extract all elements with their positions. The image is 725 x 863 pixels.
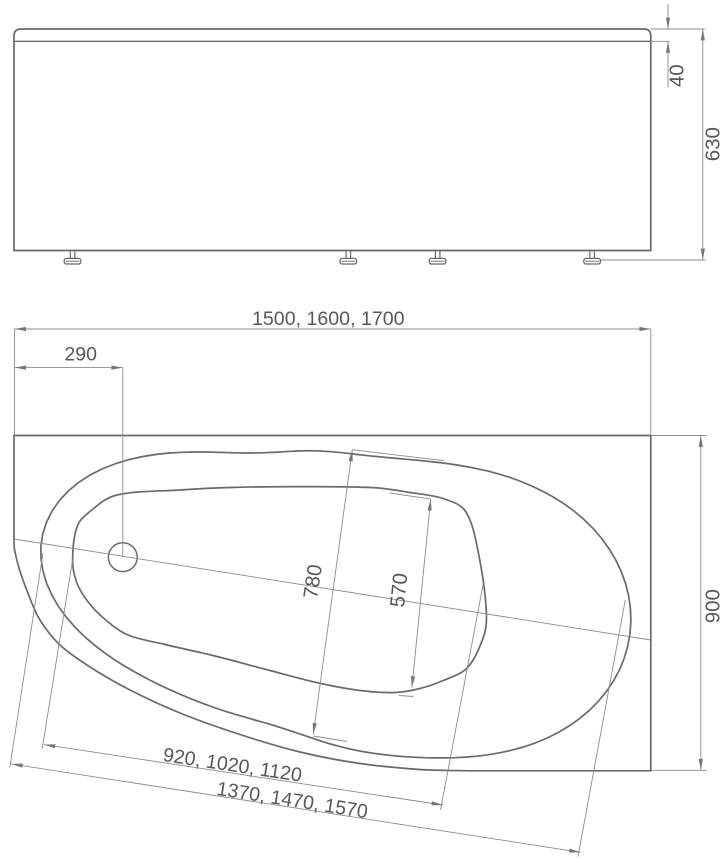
svg-text:570: 570 (386, 572, 412, 608)
svg-text:290: 290 (64, 344, 97, 366)
svg-text:900: 900 (701, 589, 724, 623)
svg-text:40: 40 (666, 64, 689, 87)
svg-text:630: 630 (701, 127, 724, 161)
svg-text:1500, 1600, 1700: 1500, 1600, 1700 (252, 308, 405, 330)
